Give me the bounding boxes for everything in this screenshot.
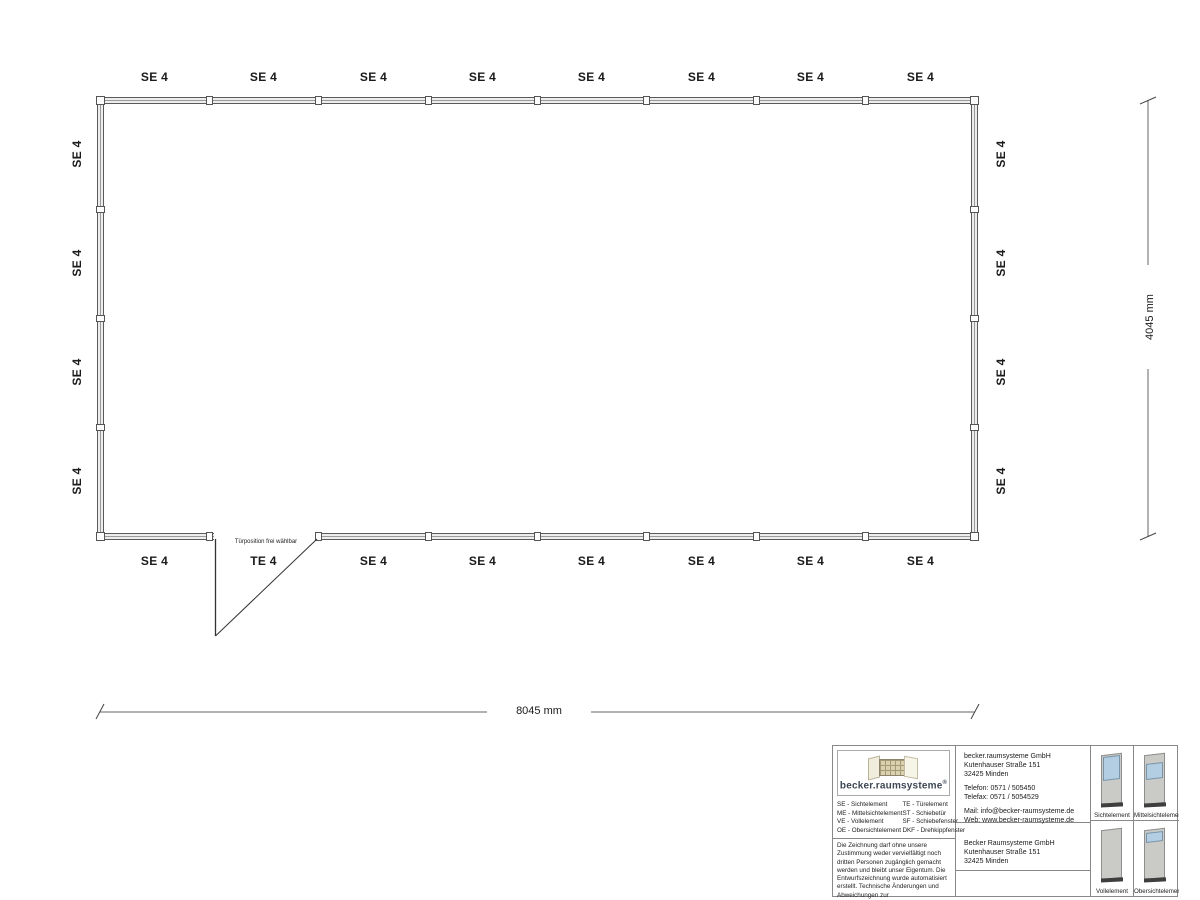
element-preview-label: Sichtelement bbox=[1091, 812, 1133, 819]
manufacturer-contact: becker.raumsysteme GmbH Kutenhauser Stra… bbox=[956, 746, 1090, 823]
wall-joint bbox=[862, 532, 869, 541]
door-position-note: Türposition frei wählbar bbox=[214, 539, 318, 545]
element-label-bottom-6: SE 4 bbox=[647, 554, 756, 568]
wall-joint bbox=[753, 532, 760, 541]
panel-base bbox=[1144, 877, 1166, 882]
customer-name: Becker Raumsysteme GmbH bbox=[964, 839, 1090, 848]
element-label-top-4: SE 4 bbox=[428, 70, 537, 84]
element-preview-cell: Sichtelement bbox=[1091, 746, 1134, 821]
element-label-bottom-5: SE 4 bbox=[537, 554, 646, 568]
wall-joint bbox=[96, 96, 105, 105]
company-logo: becker.raumsysteme® bbox=[837, 750, 950, 796]
wall-joint bbox=[970, 96, 979, 105]
title-block-middle-column: becker.raumsysteme GmbH Kutenhauser Stra… bbox=[956, 746, 1091, 896]
element-label-right-3: SE 4 bbox=[994, 322, 1008, 422]
wall-joint bbox=[315, 96, 322, 105]
element-label-bottom-8: SE 4 bbox=[866, 554, 975, 568]
wall-joint bbox=[206, 96, 213, 105]
sichtelement-icon bbox=[1101, 753, 1122, 806]
panel-base bbox=[1101, 877, 1123, 882]
legend-entry: SE - Sichtelement bbox=[837, 801, 902, 810]
glass-pane bbox=[1146, 762, 1163, 780]
element-label-bottom-2: TE 4 bbox=[209, 554, 318, 568]
vollelement-icon bbox=[1101, 828, 1122, 881]
registered-mark: ® bbox=[942, 780, 947, 786]
wall-joint bbox=[96, 315, 105, 322]
glass-pane bbox=[1103, 755, 1120, 781]
element-label-top-6: SE 4 bbox=[647, 70, 756, 84]
element-label-top-5: SE 4 bbox=[537, 70, 646, 84]
wall-joint bbox=[96, 532, 105, 541]
wall-joint bbox=[643, 532, 650, 541]
width-dimension-value: 8045 mm bbox=[487, 705, 591, 717]
legend-entry: VE - Vollelement bbox=[837, 818, 902, 827]
element-label-left-1: SE 4 bbox=[70, 104, 84, 204]
mittelsichtelement-icon bbox=[1144, 753, 1165, 806]
element-preview-grid: Sichtelement Mittelsichtelement Vollelem… bbox=[1091, 746, 1179, 896]
manufacturer-name: becker.raumsysteme GmbH bbox=[964, 752, 1090, 761]
element-label-right-2: SE 4 bbox=[994, 213, 1008, 313]
divider bbox=[833, 838, 955, 839]
wall-joint bbox=[970, 206, 979, 213]
panel-base bbox=[1101, 802, 1123, 807]
copyright-disclaimer: Die Zeichnung darf ohne unsere Zustimmun… bbox=[837, 842, 951, 900]
wall-joint bbox=[643, 96, 650, 105]
abbreviation-legend: SE - Sichtelement ME - Mittelsichtelemen… bbox=[837, 801, 952, 838]
element-label-left-2: SE 4 bbox=[70, 213, 84, 313]
wall-joint bbox=[206, 532, 213, 541]
wall-joint bbox=[970, 315, 979, 322]
wall-joint bbox=[425, 96, 432, 105]
wall-joint bbox=[534, 532, 541, 541]
drawing-canvas: SE 4 SE 4 SE 4 SE 4 SE 4 SE 4 SE 4 SE 4 … bbox=[0, 0, 1200, 900]
wall-joint bbox=[534, 96, 541, 105]
legend-entry: ME - Mittelsichtelement bbox=[837, 810, 902, 819]
element-label-top-8: SE 4 bbox=[866, 70, 975, 84]
height-dimension-value: 4045 mm bbox=[1144, 265, 1156, 369]
element-label-bottom-4: SE 4 bbox=[428, 554, 537, 568]
wall-joint bbox=[96, 424, 105, 431]
element-label-bottom-3: SE 4 bbox=[319, 554, 428, 568]
manufacturer-mail: Mail: info@becker-raumsysteme.de bbox=[964, 807, 1090, 816]
legend-entry: OE - Obersichtelement bbox=[837, 827, 902, 836]
element-label-top-2: SE 4 bbox=[209, 70, 318, 84]
element-label-right-1: SE 4 bbox=[994, 104, 1008, 204]
element-label-right-4: SE 4 bbox=[994, 431, 1008, 531]
manufacturer-fax: Telefax: 0571 / 5054529 bbox=[964, 793, 1090, 802]
manufacturer-city: 32425 Minden bbox=[964, 770, 1090, 779]
glass-pane bbox=[1146, 831, 1163, 842]
logo-room-sketch-icon bbox=[868, 755, 920, 779]
element-preview-label: Vollelement bbox=[1091, 888, 1133, 895]
customer-street: Kutenhauser Straße 151 bbox=[964, 848, 1090, 857]
customer-city: 32425 Minden bbox=[964, 857, 1090, 866]
wall-joint bbox=[425, 532, 432, 541]
element-label-top-1: SE 4 bbox=[100, 70, 209, 84]
element-label-bottom-1: SE 4 bbox=[100, 554, 209, 568]
element-preview-cell: Vollelement bbox=[1091, 821, 1134, 896]
manufacturer-street: Kutenhauser Straße 151 bbox=[964, 761, 1090, 770]
title-block-left-column: becker.raumsysteme® SE - Sichtelement ME… bbox=[833, 746, 956, 896]
element-label-bottom-7: SE 4 bbox=[756, 554, 865, 568]
logo-wordmark: becker.raumsysteme® bbox=[838, 780, 949, 791]
panel-base bbox=[1144, 802, 1166, 807]
obersichtelement-icon bbox=[1144, 828, 1165, 881]
element-label-top-7: SE 4 bbox=[756, 70, 865, 84]
element-preview-cell: Obersichtelement bbox=[1134, 821, 1179, 896]
customer-address: Becker Raumsysteme GmbH Kutenhauser Stra… bbox=[956, 823, 1090, 871]
element-preview-label: Mittelsichtelement bbox=[1134, 812, 1179, 819]
title-block: becker.raumsysteme® SE - Sichtelement ME… bbox=[832, 745, 1178, 897]
element-preview-cell: Mittelsichtelement bbox=[1134, 746, 1179, 821]
wall-joint bbox=[970, 424, 979, 431]
wall-joint bbox=[753, 96, 760, 105]
manufacturer-phone: Telefon: 0571 / 505450 bbox=[964, 784, 1090, 793]
wall-joint bbox=[96, 206, 105, 213]
element-preview-label: Obersichtelement bbox=[1134, 888, 1179, 895]
element-label-left-3: SE 4 bbox=[70, 322, 84, 422]
element-label-left-4: SE 4 bbox=[70, 431, 84, 531]
element-label-top-3: SE 4 bbox=[319, 70, 428, 84]
wall-joint bbox=[970, 532, 979, 541]
wall-joint bbox=[315, 532, 322, 541]
wall-joint bbox=[862, 96, 869, 105]
